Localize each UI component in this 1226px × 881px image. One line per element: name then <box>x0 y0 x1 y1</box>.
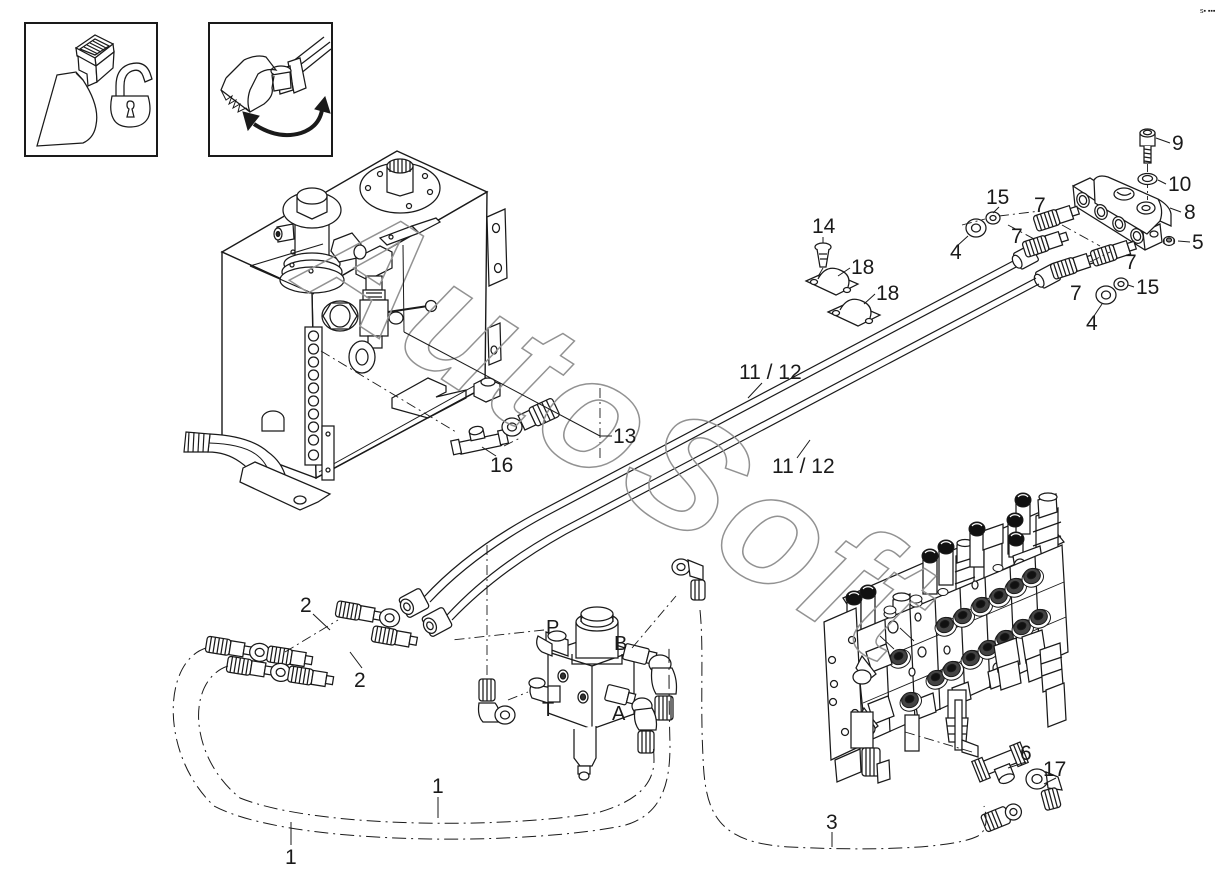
svg-text:B: B <box>614 633 627 655</box>
svg-text:15: 15 <box>1136 276 1159 299</box>
svg-text:15: 15 <box>986 186 1009 209</box>
svg-text:1: 1 <box>432 775 444 798</box>
svg-text:17: 17 <box>1043 758 1066 781</box>
svg-text:10: 10 <box>1168 173 1191 196</box>
svg-text:1: 1 <box>285 846 297 869</box>
svg-text:7: 7 <box>1070 282 1082 305</box>
svg-text:5: 5 <box>1192 231 1204 254</box>
svg-text:T: T <box>542 699 554 721</box>
svg-text:P: P <box>546 617 559 639</box>
svg-text:9: 9 <box>1172 132 1184 155</box>
svg-text:7: 7 <box>1034 194 1046 217</box>
svg-text:11 / 12: 11 / 12 <box>772 455 835 478</box>
svg-text:A: A <box>612 703 626 725</box>
svg-text:7: 7 <box>1125 251 1137 274</box>
svg-text:13: 13 <box>613 425 636 448</box>
svg-text:14: 14 <box>812 215 836 238</box>
svg-text:3: 3 <box>826 811 838 834</box>
svg-text:18: 18 <box>851 256 874 279</box>
svg-text:2: 2 <box>354 669 366 692</box>
svg-text:16: 16 <box>490 454 513 477</box>
svg-text:4: 4 <box>1086 312 1098 335</box>
svg-text:2: 2 <box>300 594 312 617</box>
svg-text:7: 7 <box>1011 225 1023 248</box>
svg-text:8: 8 <box>1184 201 1196 224</box>
svg-text:4: 4 <box>950 241 962 264</box>
svg-text:s▪ ▪▪▪: s▪ ▪▪▪ <box>1200 8 1216 15</box>
svg-text:11 / 12: 11 / 12 <box>739 361 802 384</box>
svg-text:18: 18 <box>876 282 899 305</box>
